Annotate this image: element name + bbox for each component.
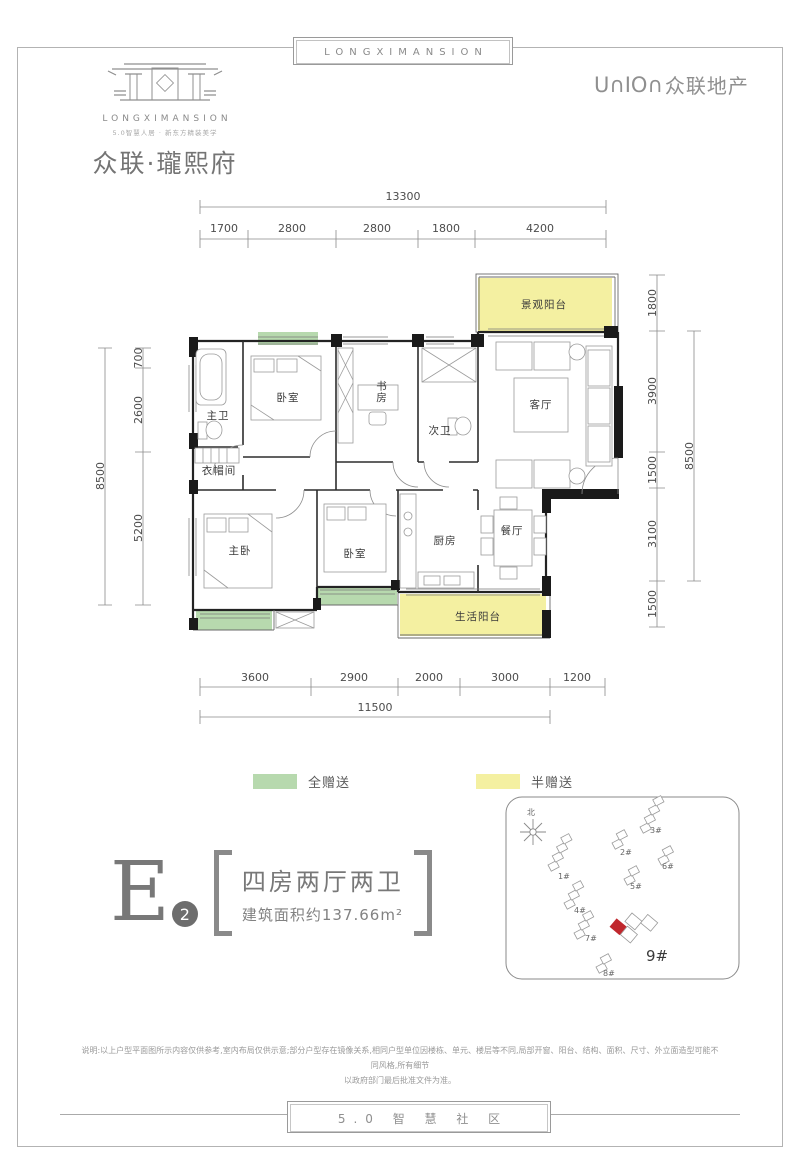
room-label-chufang: 厨房: [434, 534, 457, 547]
developer-logo: U∩IO∩ 众联地产: [594, 70, 749, 99]
room-label-woshi-top: 卧室: [277, 391, 300, 404]
building-label-2: 2#: [620, 848, 632, 857]
gate-illustration-icon: [90, 55, 240, 107]
building-label-9-highlight: 9#: [646, 947, 668, 965]
legend-item-full-gift: 全赠送: [253, 772, 350, 791]
footer-banner-text: 5.0 智 慧 社 区: [290, 1104, 548, 1132]
unit-title: E 2 四房两厅两卫 建筑面积约137.66m²: [110, 850, 432, 936]
building-label-4: 4#: [574, 906, 586, 915]
dim-left-3: 5200: [132, 514, 145, 542]
dim-right-5: 1500: [646, 590, 659, 618]
dim-top-5: 4200: [526, 222, 554, 235]
dim-top: 13300 1700 2800 2800 1800 4200: [200, 190, 606, 248]
building-label-6: 6#: [662, 862, 674, 871]
building-label-3: 3#: [650, 826, 662, 835]
north-label: 北: [527, 808, 535, 817]
disclaimer-line-1: 说明:以上户型平面图所示内容仅供参考,室内布局仅供示意;部分户型存在镜像关系,相…: [80, 1043, 720, 1073]
dim-top-total: 13300: [386, 190, 421, 203]
room-label-canting: 餐厅: [501, 524, 524, 537]
disclaimer: 说明:以上户型平面图所示内容仅供参考,室内布局仅供示意;部分户型存在镜像关系,相…: [80, 1043, 720, 1089]
dim-top-1: 1700: [210, 222, 238, 235]
dim-right-1: 1800: [646, 289, 659, 317]
footer-banner: 5.0 智 慧 社 区: [287, 1101, 551, 1133]
dim-left: 700 2600 5200 8500: [94, 348, 151, 606]
room-label-jingguan-yangtai: 景观阳台: [521, 298, 567, 311]
brand-tagline: 5.0智慧人居 · 新东方精装美学: [82, 127, 248, 137]
dim-right-3: 1500: [646, 456, 659, 484]
dim-left-2: 2600: [132, 396, 145, 424]
bracket-open: [214, 850, 232, 936]
brand-chinese: 众联·瓏熙府: [82, 144, 248, 180]
dim-bottom-3: 2000: [415, 671, 443, 684]
dim-right: 1800 3900 1500 3100 1500 8500: [646, 275, 701, 627]
full-gift-swatch: [253, 774, 297, 789]
room-label-yimaojian: 衣帽间: [202, 464, 237, 477]
building-label-7: 7#: [585, 934, 597, 943]
unit-type-letter: E: [110, 852, 170, 934]
legend: 全赠送 半赠送: [253, 772, 573, 791]
room-label-zhuwo: 主卧: [229, 544, 252, 557]
building-label-1: 1#: [558, 872, 570, 881]
developer-logo-mark: U∩IO∩: [594, 73, 663, 97]
dim-bottom-1: 3600: [241, 671, 269, 684]
room-label-keting: 客厅: [530, 398, 553, 411]
dim-bottom: 3600 2900 2000 3000 1200 11500: [200, 671, 605, 724]
room-label-ciwei: 次卫: [429, 424, 452, 437]
room-label-shufang: 书房: [375, 381, 387, 404]
dim-right-2: 3900: [646, 377, 659, 405]
dim-bottom-4: 3000: [491, 671, 519, 684]
room-label-zhuwei: 主卫: [207, 410, 230, 422]
dim-top-4: 1800: [432, 222, 460, 235]
disclaimer-line-2: 以政府部门最后批准文件为准。: [80, 1073, 720, 1088]
dim-right-total: 8500: [683, 442, 696, 470]
footer-rule-right: [545, 1114, 740, 1115]
dim-top-3: 2800: [363, 222, 391, 235]
full-gift-label: 全赠送: [308, 772, 350, 791]
legend-item-half-gift: 半赠送: [476, 772, 573, 791]
building-label-8: 8#: [603, 969, 615, 978]
half-gift-swatch: [476, 774, 520, 789]
room-label-woshi-bottom: 卧室: [344, 547, 367, 560]
floor-plan: 景观阳台 客厅 卧室 书房 次卫 主卫 衣帽间 主卧 卧室 厨房 餐厅 生活阳台…: [88, 180, 718, 740]
footer-rule-left: [60, 1114, 287, 1115]
room-label-shenghuo-yangtai: 生活阳台: [455, 610, 501, 623]
dim-bottom-total: 11500: [358, 701, 393, 714]
dim-right-4: 3100: [646, 520, 659, 548]
dim-left-total: 8500: [94, 462, 107, 490]
unit-type-number: 2: [172, 901, 198, 927]
dim-top-2: 2800: [278, 222, 306, 235]
brand-english: LONGXIMANSION: [82, 114, 248, 124]
brand-logo: LONGXIMANSION 5.0智慧人居 · 新东方精装美学 众联·瓏熙府: [82, 55, 248, 180]
unit-area: 建筑面积约137.66m²: [242, 904, 404, 925]
top-banner-text: LONGXIMANSION: [296, 40, 510, 64]
top-banner: LONGXIMANSION: [293, 37, 513, 65]
half-gift-label: 半赠送: [531, 772, 573, 791]
dim-bottom-5: 1200: [563, 671, 591, 684]
building-label-5: 5#: [630, 882, 642, 891]
site-plan: 北 1# 2# 3# 4# 5# 6# 7# 8# 9#: [500, 793, 745, 993]
developer-logo-name: 众联地产: [665, 70, 749, 99]
unit-layout: 四房两厅两卫: [242, 862, 404, 897]
dim-bottom-2: 2900: [340, 671, 368, 684]
bracket-close: [414, 850, 432, 936]
dim-left-1: 700: [132, 348, 145, 369]
compass-north-icon: 北: [520, 808, 546, 845]
